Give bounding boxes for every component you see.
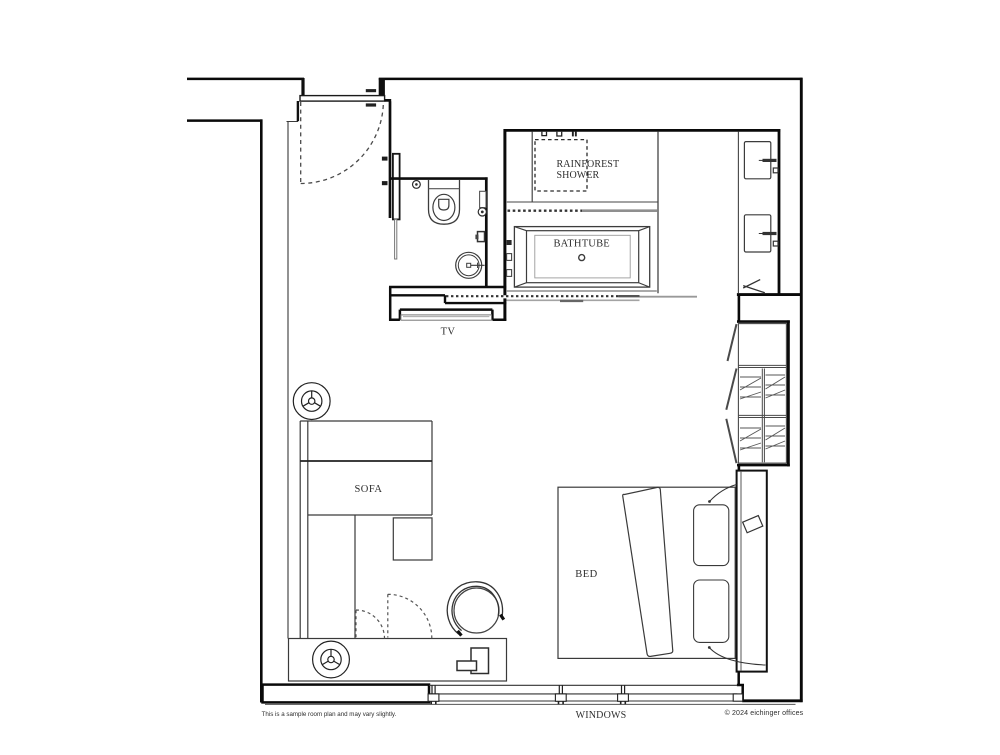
svg-text:This is a sample room plan and: This is a sample room plan and may vary … — [262, 711, 397, 718]
svg-text:© 2024 eichinger offices: © 2024 eichinger offices — [725, 709, 804, 717]
svg-text:TV: TV — [441, 326, 456, 337]
svg-text:RAINFOREST: RAINFOREST — [557, 159, 620, 170]
svg-text:WINDOWS: WINDOWS — [576, 710, 627, 721]
svg-text:SOFA: SOFA — [354, 484, 382, 495]
svg-text:BATHTUBE: BATHTUBE — [553, 238, 609, 249]
svg-text:SHOWER: SHOWER — [557, 170, 600, 181]
svg-text:BED: BED — [575, 569, 598, 580]
